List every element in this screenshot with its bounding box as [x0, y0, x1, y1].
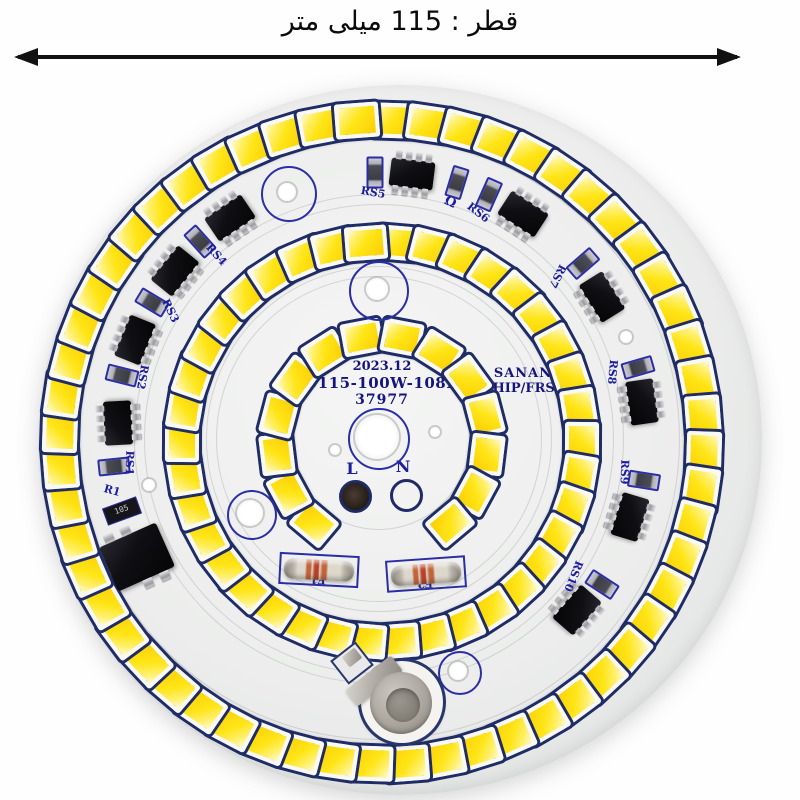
ic-leg	[652, 381, 662, 388]
hole	[237, 500, 263, 526]
terminal-pad-l	[339, 480, 372, 513]
fuse-body	[284, 558, 355, 582]
hole	[143, 479, 155, 491]
hole	[330, 445, 340, 455]
arrow-right-icon	[717, 48, 741, 66]
smd-resistor	[367, 156, 384, 188]
smd-led	[258, 433, 296, 477]
smd-led	[344, 224, 389, 261]
silkscreen-label-rs1: RS1	[121, 443, 136, 483]
disc-center	[386, 688, 420, 722]
ic-leg	[95, 406, 104, 412]
ic-leg	[655, 401, 665, 408]
ic-leg	[618, 386, 628, 393]
ic-leg	[421, 188, 428, 198]
ic-leg	[657, 411, 667, 418]
ic-leg	[620, 406, 630, 413]
ic-leg	[97, 436, 106, 442]
metal-disc	[370, 672, 432, 734]
driver-ic-rs8	[625, 378, 659, 425]
ic-leg	[416, 152, 423, 162]
ic-leg	[406, 151, 413, 161]
ic-leg	[131, 424, 140, 430]
ic-leg	[425, 154, 432, 164]
ic-leg	[619, 396, 629, 403]
ic-leg	[396, 150, 403, 160]
ic-leg	[130, 404, 139, 410]
diameter-arrow	[18, 55, 737, 59]
ic-leg	[622, 416, 632, 423]
hole	[355, 415, 399, 459]
smd-led	[334, 102, 381, 140]
driver-ic-rs1	[103, 400, 133, 445]
ic-leg	[411, 187, 418, 197]
ic-leg	[96, 416, 105, 422]
driver-ic-rs5	[388, 157, 435, 190]
hole	[620, 331, 632, 343]
arrow-left-icon	[14, 48, 38, 66]
hole	[449, 662, 467, 680]
ic-leg	[131, 414, 140, 420]
driver-ic-rs9	[610, 492, 650, 542]
hole	[430, 427, 440, 437]
ic-leg	[96, 426, 105, 432]
fuse-resistor-f2	[385, 555, 467, 593]
fuse-resistor-f1	[278, 552, 360, 588]
hole	[278, 183, 296, 201]
ic-leg	[401, 186, 408, 196]
fuse-body	[390, 562, 461, 587]
silkscreen-label-rs9: RS9	[616, 452, 631, 492]
photo-stage: قطر : 115 میلی متر 2023.12 D115-100W-108…	[0, 0, 800, 800]
terminal-pad-n	[390, 479, 423, 512]
ic-leg	[132, 434, 141, 440]
hole	[366, 278, 388, 300]
ic-leg	[654, 391, 664, 398]
diameter-caption: قطر : 115 میلی متر	[0, 6, 800, 37]
